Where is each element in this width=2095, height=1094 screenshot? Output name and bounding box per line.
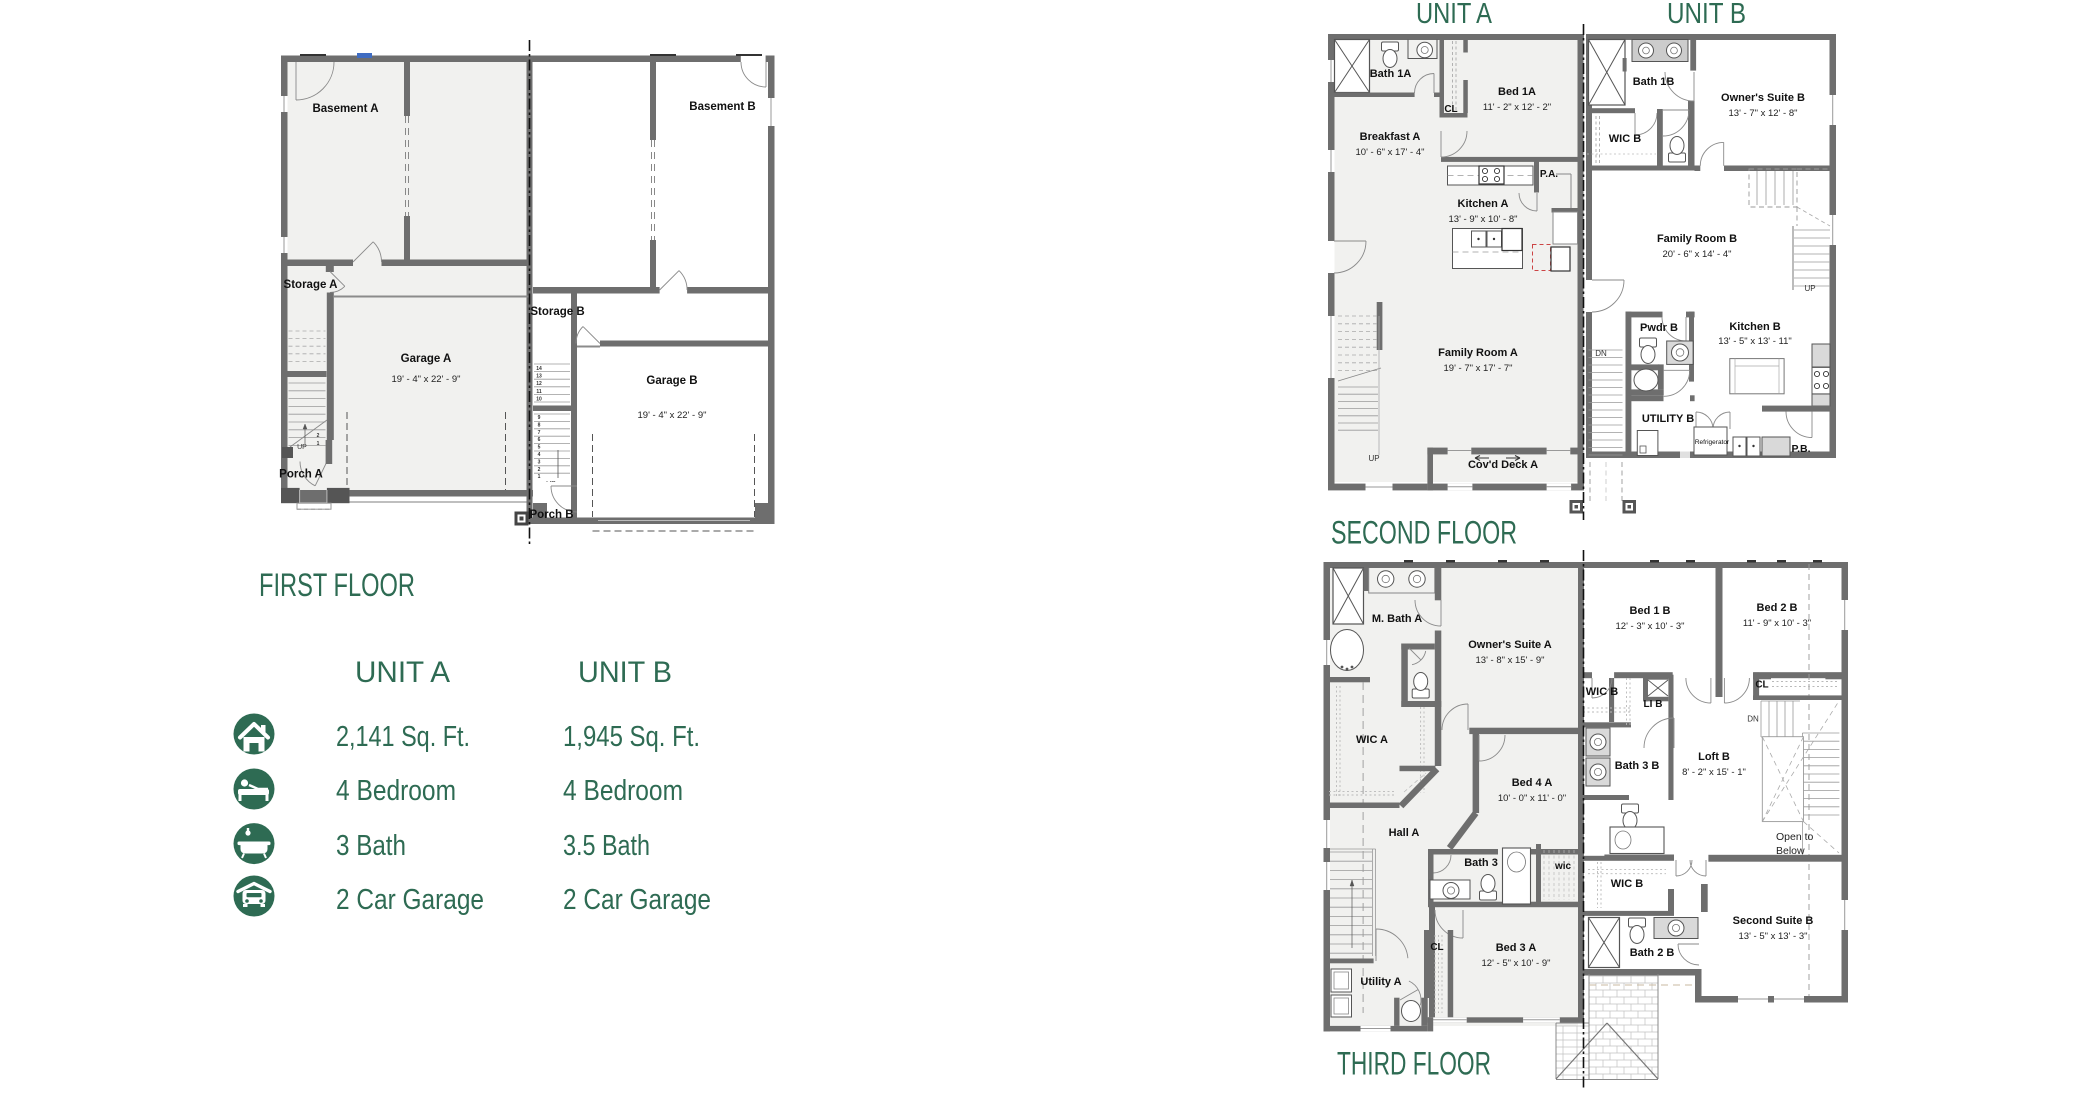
svg-text:UP: UP: [1368, 454, 1379, 463]
svg-text:11' - 2" x 12' - 2": 11' - 2" x 12' - 2": [1483, 102, 1551, 113]
svg-text:3.5 Bath: 3.5 Bath: [563, 830, 650, 862]
svg-text:Storage B: Storage B: [530, 306, 584, 318]
svg-text:Basement A: Basement A: [312, 103, 378, 115]
svg-text:P.B.: P.B.: [1791, 443, 1810, 455]
svg-text:3: 3: [538, 459, 541, 465]
svg-text:12' - 3" x 10' - 3": 12' - 3" x 10' - 3": [1616, 621, 1685, 632]
svg-text:20' - 6" x 14' - 4": 20' - 6" x 14' - 4": [1663, 249, 1732, 260]
svg-text:4 Bedroom: 4 Bedroom: [336, 775, 456, 807]
svg-text:10' - 6" x 17' - 4": 10' - 6" x 17' - 4": [1356, 147, 1425, 158]
svg-text:Cov'd Deck A: Cov'd Deck A: [1468, 459, 1538, 471]
svg-text:UNIT A: UNIT A: [1416, 0, 1493, 30]
svg-text:9: 9: [538, 415, 541, 421]
svg-text:Kitchen A: Kitchen A: [1458, 198, 1509, 210]
svg-text:UTILITY B: UTILITY B: [1642, 413, 1694, 425]
svg-text:13' - 9" x 10' - 8": 13' - 9" x 10' - 8": [1449, 214, 1518, 225]
svg-text:2 Car Garage: 2 Car Garage: [563, 884, 711, 916]
svg-text:WIC A: WIC A: [1356, 734, 1388, 746]
svg-text:Loft B: Loft B: [1698, 751, 1730, 763]
svg-text:Second Suite B: Second Suite B: [1733, 915, 1814, 927]
svg-text:WIC B: WIC B: [1609, 133, 1641, 145]
svg-text:SECOND FLOOR: SECOND FLOOR: [1331, 515, 1517, 551]
svg-text:M. Bath A: M. Bath A: [1372, 613, 1422, 625]
svg-text:3 Bath: 3 Bath: [336, 830, 406, 862]
svg-text:Refrigerator: Refrigerator: [1695, 439, 1730, 446]
svg-text:13' - 5" x 13' - 3": 13' - 5" x 13' - 3": [1739, 931, 1808, 942]
svg-text:Family Room B: Family Room B: [1657, 233, 1737, 245]
svg-text:4 Bedroom: 4 Bedroom: [563, 775, 683, 807]
svg-text:Pwdr B: Pwdr B: [1640, 322, 1678, 334]
svg-text:DN: DN: [1747, 715, 1759, 724]
svg-text:2,141 Sq. Ft.: 2,141 Sq. Ft.: [336, 721, 470, 753]
svg-text:Bed 2 B: Bed 2 B: [1757, 602, 1798, 614]
svg-text:11' - 9" x 10' - 3": 11' - 9" x 10' - 3": [1743, 618, 1811, 629]
svg-text:19' - 7" x 17' - 7": 19' - 7" x 17' - 7": [1444, 363, 1513, 374]
svg-text:Hall A: Hall A: [1389, 827, 1420, 839]
svg-text:Porch A: Porch A: [279, 469, 323, 481]
svg-text:P.A.: P.A.: [1540, 169, 1558, 180]
svg-text:6: 6: [538, 437, 541, 443]
svg-text:CL: CL: [1755, 680, 1768, 691]
svg-text:12' - 5" x 10' - 9": 12' - 5" x 10' - 9": [1482, 958, 1551, 969]
svg-text:2: 2: [317, 433, 320, 439]
svg-text:DN: DN: [1595, 349, 1607, 358]
svg-text:12: 12: [536, 381, 542, 387]
svg-text:Garage A: Garage A: [401, 353, 452, 365]
svg-text:Bath 2 B: Bath 2 B: [1630, 947, 1675, 959]
svg-text:13: 13: [536, 374, 542, 380]
svg-text:Bath 3: Bath 3: [1464, 857, 1498, 869]
svg-text:Bath 3 B: Bath 3 B: [1615, 760, 1660, 772]
svg-text:Porch B: Porch B: [529, 509, 573, 521]
svg-text:5: 5: [538, 445, 541, 451]
svg-text:Storage A: Storage A: [284, 279, 338, 291]
svg-text:8: 8: [538, 422, 541, 428]
svg-text:UNIT B: UNIT B: [1667, 0, 1746, 30]
svg-text:8' - 2" x 15' - 1": 8' - 2" x 15' - 1": [1682, 767, 1746, 778]
svg-text:7: 7: [538, 430, 541, 436]
svg-text:4: 4: [538, 452, 541, 458]
svg-text:UP: UP: [1804, 284, 1815, 293]
svg-text:Family Room A: Family Room A: [1438, 347, 1518, 359]
svg-text:CL: CL: [1430, 942, 1443, 953]
svg-text:19' - 4" x 22' - 9": 19' - 4" x 22' - 9": [392, 374, 461, 385]
svg-text:10' - 0" x 11' - 0": 10' - 0" x 11' - 0": [1498, 793, 1566, 804]
svg-text:1: 1: [317, 441, 320, 447]
svg-text:10: 10: [536, 396, 542, 402]
svg-text:Bath 1B: Bath 1B: [1633, 76, 1675, 88]
svg-text:1,945 Sq. Ft.: 1,945 Sq. Ft.: [563, 721, 700, 753]
svg-text:14: 14: [536, 366, 542, 372]
svg-text:2 Car Garage: 2 Car Garage: [336, 884, 484, 916]
svg-text:WIC B: WIC B: [1586, 686, 1618, 698]
svg-text:CL: CL: [1444, 104, 1457, 115]
svg-text:11: 11: [536, 389, 542, 395]
svg-text:FIRST FLOOR: FIRST FLOOR: [259, 567, 415, 603]
svg-text:Owner's Suite B: Owner's Suite B: [1721, 92, 1805, 104]
svg-text:Garage B: Garage B: [646, 375, 697, 387]
svg-text:UNIT A: UNIT A: [355, 656, 450, 689]
svg-text:1: 1: [538, 474, 541, 480]
svg-text:Breakfast A: Breakfast A: [1360, 131, 1421, 143]
svg-text:Kitchen B: Kitchen B: [1729, 321, 1780, 333]
svg-text:13' - 8" x 15' - 9": 13' - 8" x 15' - 9": [1476, 655, 1545, 666]
svg-text:Basement B: Basement B: [689, 101, 755, 113]
svg-text:LI B: LI B: [1644, 699, 1663, 710]
svg-text:13' - 5" x 13' - 11": 13' - 5" x 13' - 11": [1718, 336, 1792, 347]
svg-text:Bath 1A: Bath 1A: [1370, 68, 1412, 80]
svg-text:13' - 7" x 12' - 8": 13' - 7" x 12' - 8": [1729, 108, 1798, 119]
svg-text:2: 2: [538, 467, 541, 473]
svg-text:Bed 3 A: Bed 3 A: [1496, 942, 1537, 954]
svg-text:Bed 4 A: Bed 4 A: [1512, 777, 1553, 789]
svg-text:UP: UP: [297, 444, 307, 451]
svg-text:wic: wic: [1554, 861, 1572, 872]
svg-text:Owner's Suite A: Owner's Suite A: [1468, 639, 1552, 651]
svg-text:WIC B: WIC B: [1611, 878, 1643, 890]
svg-text:Utility A: Utility A: [1360, 976, 1401, 988]
svg-text:19' - 4" x 22' - 9": 19' - 4" x 22' - 9": [638, 410, 707, 421]
svg-text:Bed 1A: Bed 1A: [1498, 86, 1536, 98]
svg-text:THIRD FLOOR: THIRD FLOOR: [1337, 1046, 1491, 1082]
svg-text:UNIT B: UNIT B: [578, 656, 672, 689]
svg-text:Open to: Open to: [1776, 831, 1814, 843]
svg-text:Bed 1 B: Bed 1 B: [1630, 605, 1671, 617]
